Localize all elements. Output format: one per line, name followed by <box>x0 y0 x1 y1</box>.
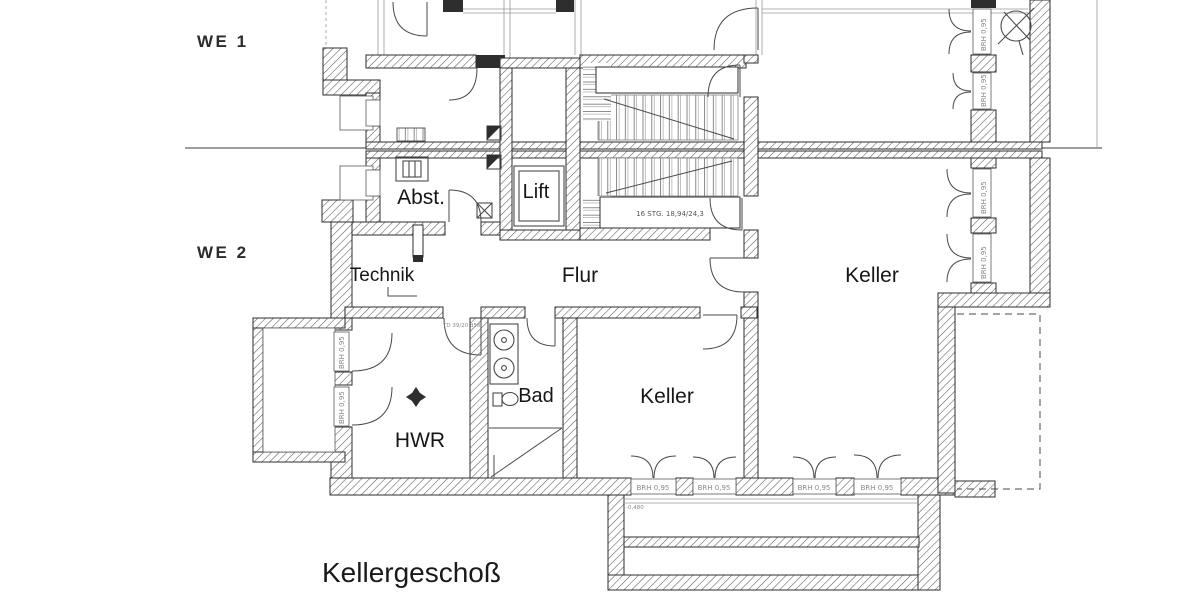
wall-segment <box>736 478 793 495</box>
window-sill-label: BRH 0,95 <box>861 484 894 492</box>
stair-landing-upper <box>596 67 738 93</box>
light-well-wall <box>624 537 919 547</box>
terrace-dashed-outline <box>957 314 1040 489</box>
wall-segment <box>1030 0 1050 142</box>
wall-segment <box>500 58 512 238</box>
window-sill-label: BRH 0,95 <box>980 74 988 107</box>
light-well-wall <box>918 495 940 590</box>
wall-segment <box>580 228 710 240</box>
light-shaft-inner <box>263 328 335 452</box>
window-upper-left-1 <box>366 100 380 126</box>
wall-segment <box>563 318 577 478</box>
door-top-right <box>714 8 758 50</box>
room-label-flur: Flur <box>562 264 598 287</box>
column-star-icon <box>406 387 426 407</box>
wall-stub <box>413 255 423 262</box>
stair-note: 16 STG. 18,94/24,3 <box>636 210 704 218</box>
door-tag: TD 39/20 d58 <box>442 323 481 329</box>
heater-vent-grid <box>397 128 425 141</box>
window-sill-label: BRH 0,95 <box>698 484 731 492</box>
light-shaft-wall <box>253 318 345 328</box>
window-sill-label: BRH 0,95 <box>980 18 988 51</box>
wall-segment <box>366 142 1042 149</box>
wall-segment <box>744 292 758 478</box>
wall-segment <box>836 478 854 495</box>
room-label-technik: Technik <box>350 265 415 286</box>
window-bottom-2: BRH 0,95 <box>693 457 736 494</box>
wall-segment <box>744 230 758 258</box>
window-bottom-1: BRH 0,95 <box>631 456 676 494</box>
light-well-wall <box>608 575 940 590</box>
room-label-lift: Lift <box>523 181 550 203</box>
wall-segment <box>352 222 445 235</box>
window-right-4: BRH 0,95 <box>947 234 991 282</box>
door-abst <box>449 190 481 222</box>
unit-labels: WE 1 WE 2 <box>197 32 249 262</box>
light-shaft-wall <box>253 452 345 462</box>
shower-area <box>489 428 562 477</box>
window-sill-label: BRH 0,95 <box>338 391 346 424</box>
window-sill-label: BRH 0,95 <box>980 246 988 279</box>
window-left-2: BRH 0,95 <box>334 387 392 426</box>
door-niche-mark <box>388 287 417 296</box>
level-tag: -0,480 <box>626 505 644 511</box>
light-shaft-wall <box>253 318 263 462</box>
plan-title: Kellergeschoß <box>322 557 501 588</box>
window-sill-label: BRH 0,95 <box>798 484 831 492</box>
toilet-icon <box>493 393 518 407</box>
wall-segment <box>971 218 996 233</box>
door-flur-keller <box>710 258 744 292</box>
room-label-bad: Bad <box>518 385 554 407</box>
wall-segment <box>971 110 996 142</box>
wall-segment <box>676 478 693 495</box>
window-right-1: BRH 0,95 <box>949 9 991 54</box>
unit-label-we1: WE 1 <box>197 32 249 51</box>
survey-point-icon <box>998 8 1034 55</box>
wall-segment <box>971 158 996 168</box>
wall-segment <box>500 230 580 240</box>
window-right-2: BRH 0,95 <box>953 73 991 109</box>
window-left-1: BRH 0,95 <box>334 332 392 371</box>
wall-segment <box>470 318 488 478</box>
wall-segment <box>366 55 476 68</box>
room-label-keller-right: Keller <box>845 264 899 287</box>
door-keller-center <box>703 315 737 349</box>
floor-plan-page: 16 STG. 18,94/24,3 BRH 0,95 BRH 0,95 <box>0 0 1200 600</box>
wall-segment <box>555 307 700 318</box>
wall-segment <box>481 307 525 318</box>
wall-segment <box>971 55 996 72</box>
window-bottom-4: BRH 0,95 <box>854 455 901 494</box>
partition-wall <box>413 225 423 257</box>
wall-segment <box>322 200 353 222</box>
door-top-left <box>393 2 427 36</box>
wall-segment <box>366 151 1042 158</box>
wall-segment <box>744 55 758 63</box>
door-bad <box>527 318 555 346</box>
middle-wall-band <box>366 142 1042 158</box>
window-sill-label: BRH 0,95 <box>338 336 346 369</box>
wall-segment <box>938 307 955 493</box>
window-right-3: BRH 0,95 <box>947 169 991 217</box>
wall-segment <box>1030 158 1050 293</box>
washer-dryer-icons <box>490 324 518 384</box>
room-label-keller-center: Keller <box>640 385 694 408</box>
wall-stub <box>971 0 996 8</box>
wall-segment <box>741 307 757 318</box>
wall-segment <box>500 58 580 68</box>
window-sill-label: BRH 0,95 <box>980 181 988 214</box>
floor-plan-drawing: 16 STG. 18,94/24,3 BRH 0,95 BRH 0,95 <box>0 0 1200 600</box>
door-upper-room <box>449 68 477 100</box>
window-bottom-3: BRH 0,95 <box>793 457 836 494</box>
room-label-hwr: HWR <box>395 429 445 452</box>
wall-segment <box>938 293 1050 307</box>
unit-label-we2: WE 2 <box>197 243 249 262</box>
room-label-abst: Abst. <box>397 186 445 209</box>
wall-segment <box>566 58 580 240</box>
window-upper-left-2 <box>366 170 380 196</box>
window-sill-label: BRH 0,95 <box>637 484 670 492</box>
wall-segment <box>744 97 758 196</box>
wall-stub <box>556 0 574 12</box>
wall-segment <box>345 307 443 318</box>
boiler-symbol <box>396 157 428 181</box>
wall-stub <box>443 0 463 12</box>
wall-segment <box>330 478 631 495</box>
